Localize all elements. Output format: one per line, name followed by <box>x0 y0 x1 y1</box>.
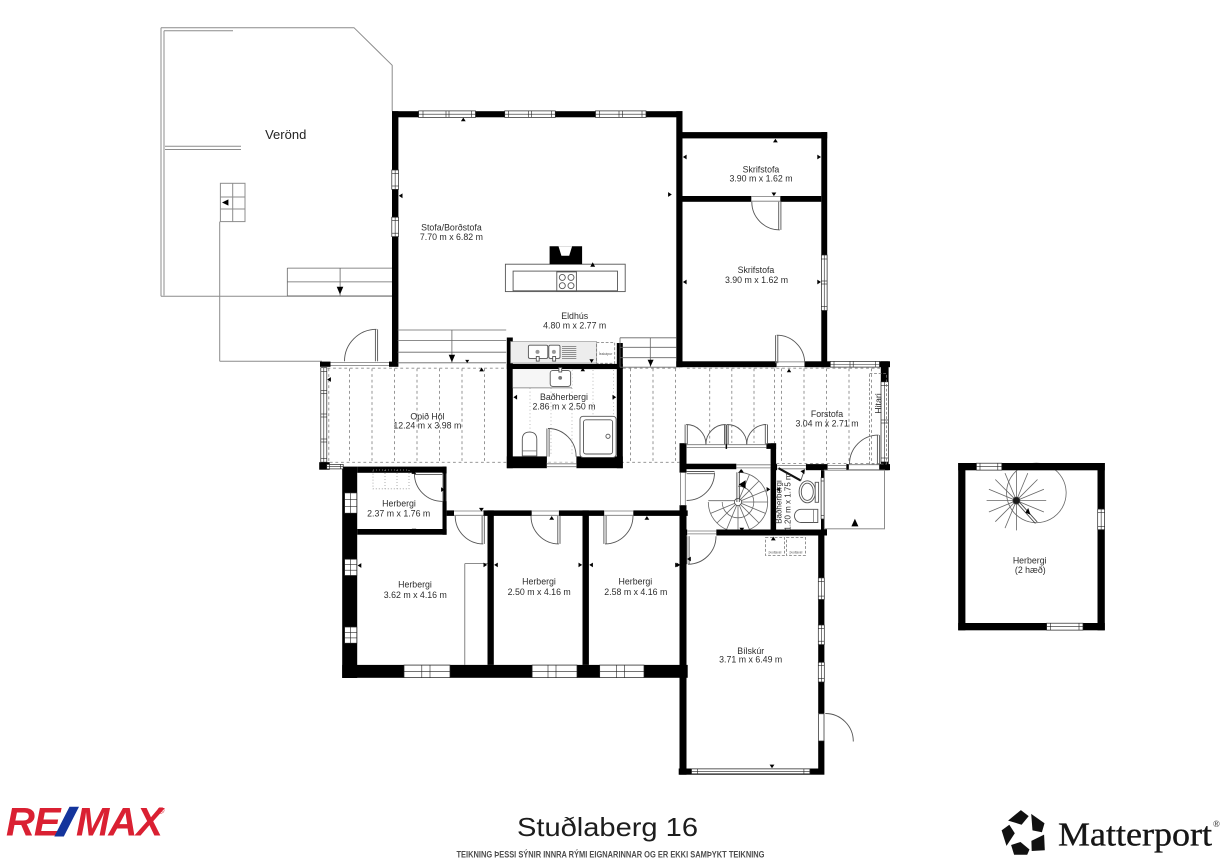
svg-text:Herbergi: Herbergi <box>398 579 432 589</box>
svg-text:TEIKNING ÞESSI SÝNIR INNRA RÝM: TEIKNING ÞESSI SÝNIR INNRA RÝMI EIGNARIN… <box>457 849 765 861</box>
svg-text:Herbergi: Herbergi <box>522 577 556 587</box>
svg-text:Stofa/Borðstofa: Stofa/Borðstofa <box>421 223 482 233</box>
svg-text:12.24 m x 3.98 m: 12.24 m x 3.98 m <box>393 420 461 430</box>
svg-text:Stuðlaberg 16: Stuðlaberg 16 <box>517 812 698 842</box>
svg-text:2.37 m x 1.76 m: 2.37 m x 1.76 m <box>367 509 430 519</box>
svg-text:þvottavél: þvottavél <box>790 550 803 554</box>
svg-text:3.62 m x 4.16 m: 3.62 m x 4.16 m <box>384 590 447 600</box>
svg-text:3.04 m x 2.71 m: 3.04 m x 2.71 m <box>795 419 858 429</box>
svg-text:Herbergi: Herbergi <box>382 498 416 508</box>
svg-text:3.90 m x 1.62 m: 3.90 m x 1.62 m <box>729 174 792 184</box>
svg-text:RE: RE <box>6 801 62 845</box>
svg-text:Forstofa: Forstofa <box>811 409 843 419</box>
svg-text:2.50 m x 4.16 m: 2.50 m x 4.16 m <box>508 587 571 597</box>
svg-text:2.86 m x 2.50 m: 2.86 m x 2.50 m <box>532 401 595 411</box>
svg-text:®: ® <box>1213 819 1220 829</box>
svg-text:Matterport: Matterport <box>1058 817 1213 854</box>
svg-text:3.71 m x 6.49 m: 3.71 m x 6.49 m <box>719 655 782 665</box>
svg-text:7.70 m x 6.82 m: 7.70 m x 6.82 m <box>420 232 483 242</box>
svg-text:Eldhús: Eldhús <box>561 311 588 321</box>
svg-text:Ísskápur: Ísskápur <box>599 352 613 356</box>
svg-text:4.80 m x 2.77 m: 4.80 m x 2.77 m <box>543 321 606 331</box>
svg-text:Baðherbergi: Baðherbergi <box>775 480 784 524</box>
svg-text:Skrifstofa: Skrifstofa <box>738 265 775 275</box>
svg-text:Herbergi: Herbergi <box>619 577 653 587</box>
svg-text:MAX: MAX <box>76 801 165 845</box>
svg-text:Herbergi: Herbergi <box>1013 555 1047 565</box>
svg-text:Verönd: Verönd <box>265 127 306 142</box>
svg-text:Hitari: Hitari <box>874 393 884 414</box>
svg-text:2.58 m x 4.16 m: 2.58 m x 4.16 m <box>604 587 667 597</box>
svg-text:1.20 m x 1.75 m: 1.20 m x 1.75 m <box>783 473 792 531</box>
svg-text:þvottavél: þvottavél <box>769 550 782 554</box>
svg-text:®: ® <box>158 806 165 817</box>
svg-text:(2 hæð): (2 hæð) <box>1015 565 1046 575</box>
svg-text:3.90 m x 1.62 m: 3.90 m x 1.62 m <box>725 275 788 285</box>
